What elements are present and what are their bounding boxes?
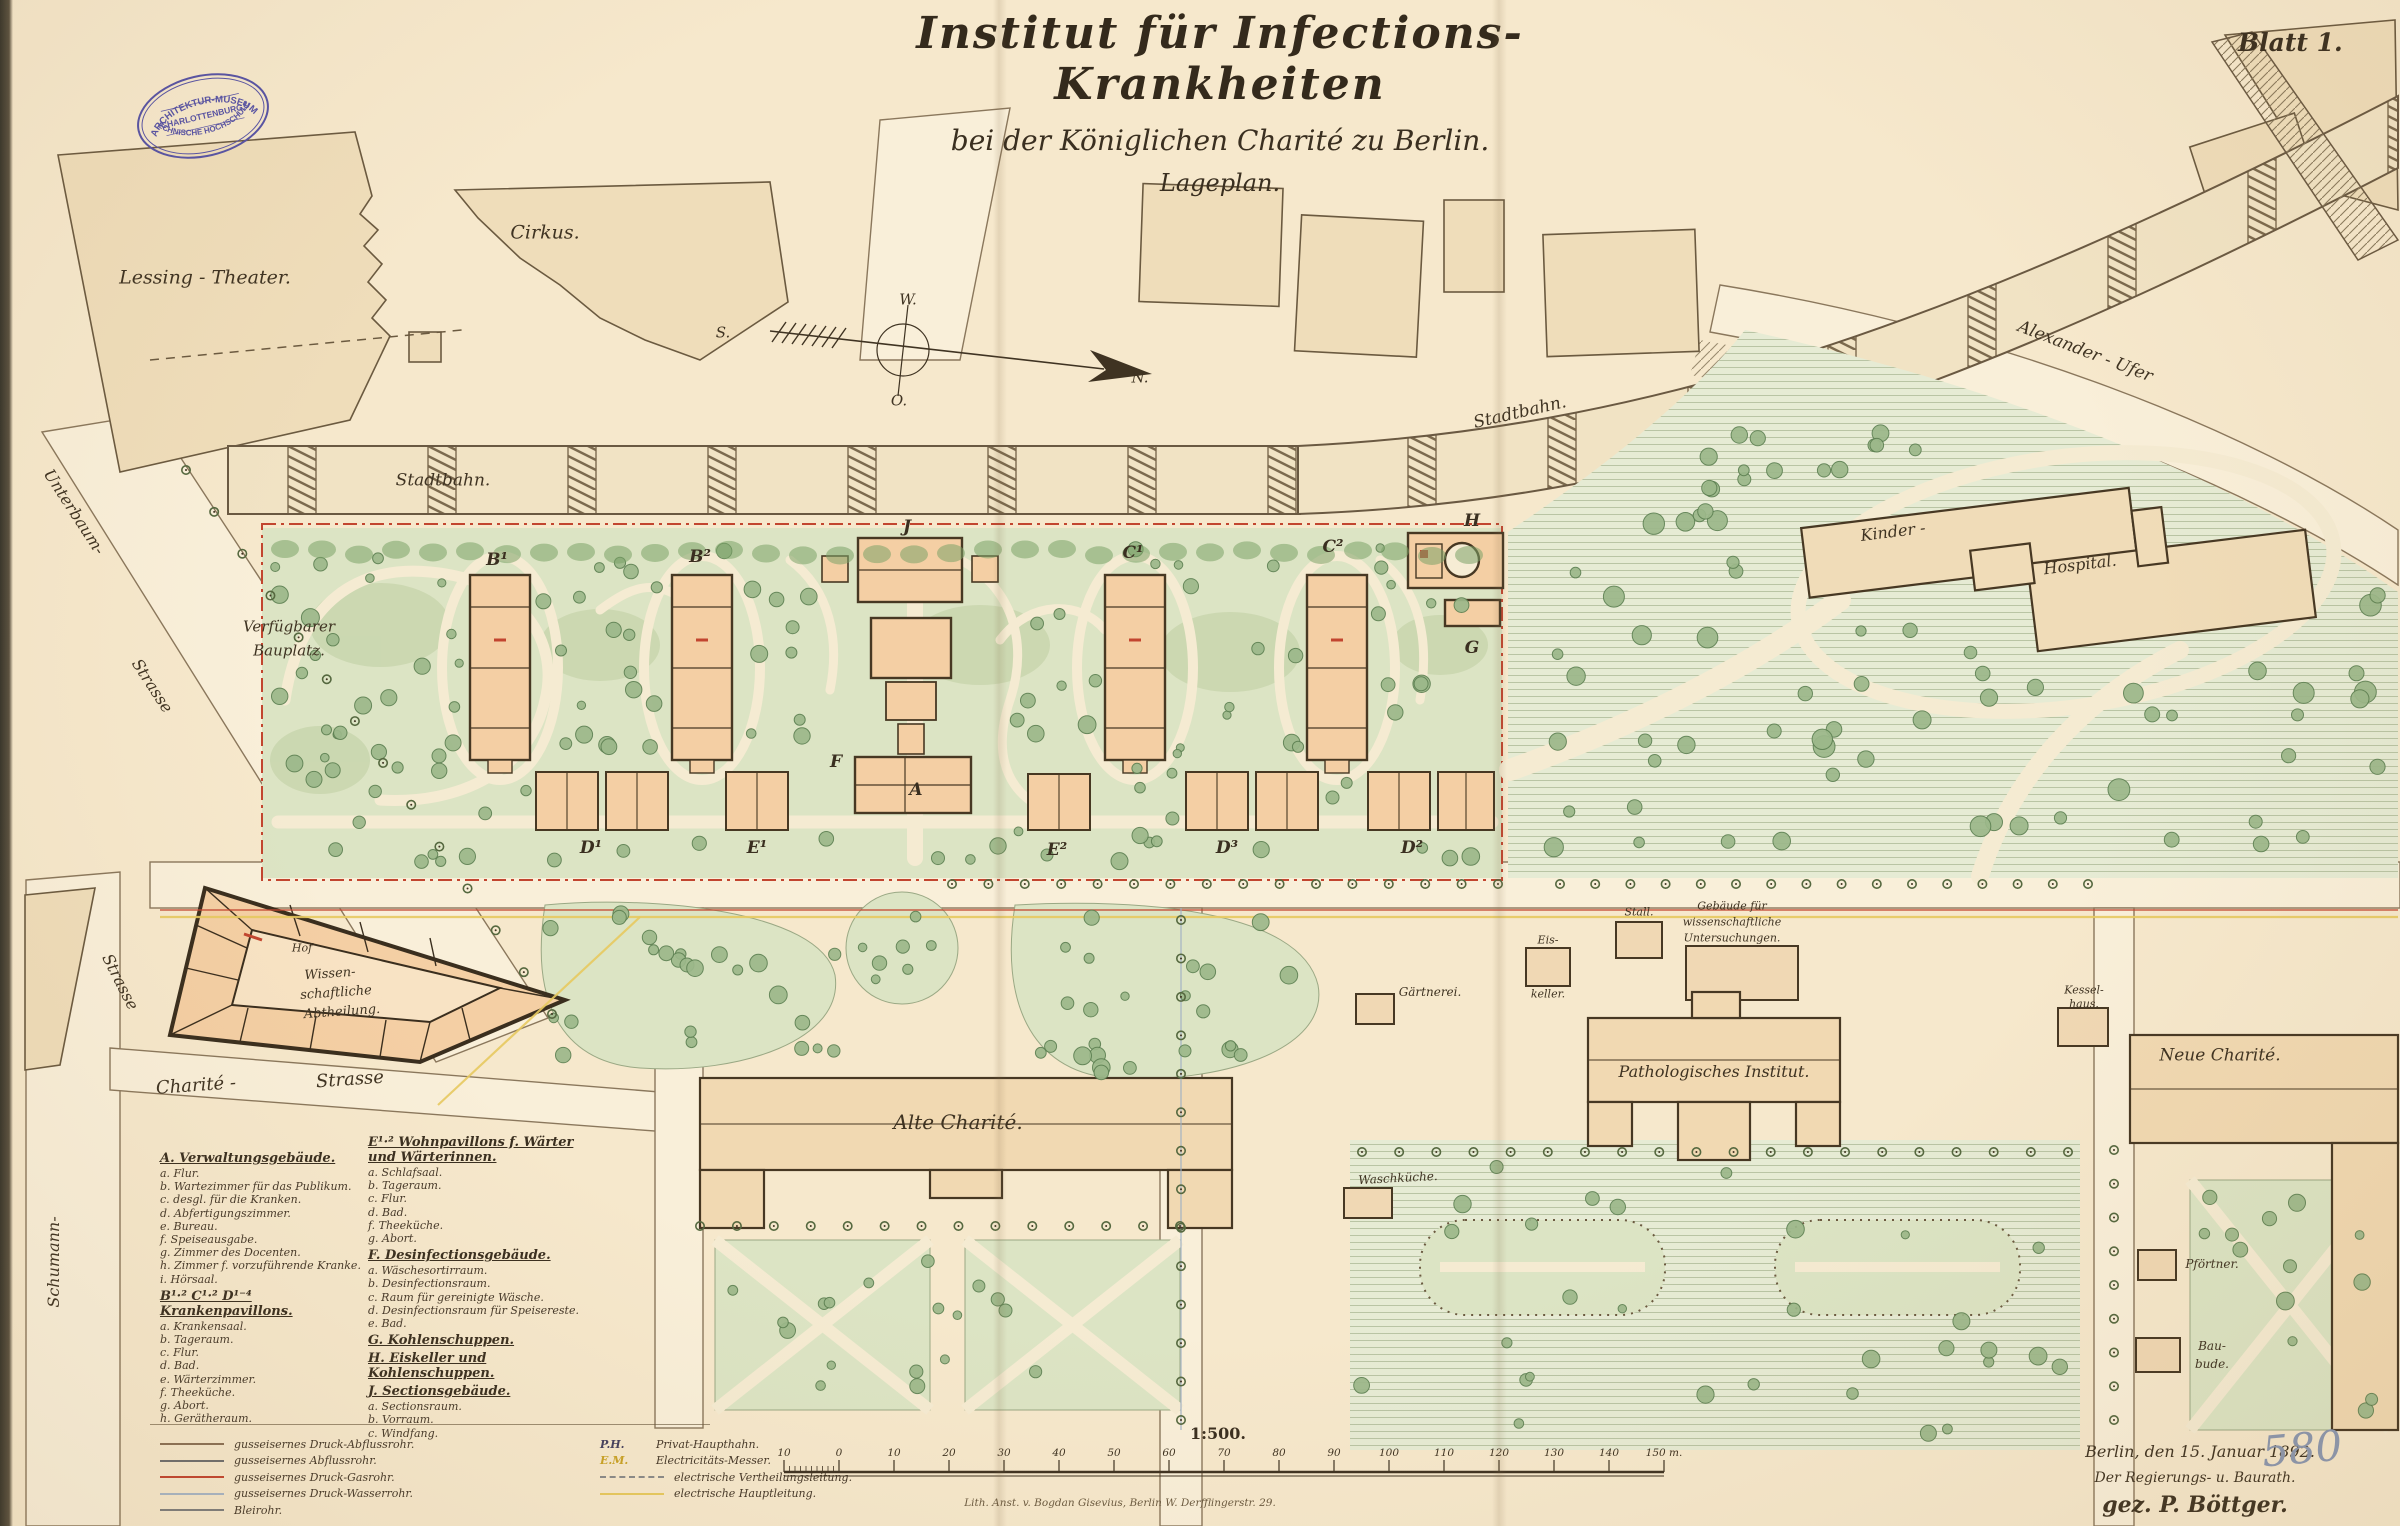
legend-key-left: gusseisernes Druck-Abflussrohr.gusseiser… [160, 1436, 414, 1519]
legend-item: a. Flur. [160, 1167, 384, 1180]
plan-type-label: Lageplan. [810, 169, 1630, 197]
building-top-3 [1444, 200, 1504, 292]
legend-key-line [600, 1476, 664, 1478]
scale-tick-label: 120 [1489, 1447, 1509, 1459]
legend-item: e. Wärterzimmer. [160, 1373, 384, 1386]
legend-item: d. Bad. [368, 1206, 592, 1219]
scale-tick-label: 90 [1327, 1447, 1341, 1459]
legend-heading: B¹·² C¹·² D¹⁻⁴ Krankenpavillons. [160, 1289, 384, 1319]
legend-item: c. Flur. [160, 1346, 384, 1359]
legend-item: b. Tageraum. [160, 1333, 384, 1346]
building-waschkueche [1344, 1188, 1392, 1218]
legend-heading: E¹·² Wohnpavillons f. Wärter und Wärteri… [368, 1135, 592, 1165]
legend-column-1: A. Verwaltungsgebäude.a. Flur.b. Wartezi… [160, 1148, 384, 1425]
legend-item: g. Abort. [368, 1232, 592, 1245]
building-top-1 [1139, 184, 1283, 307]
footer-signature: gez. P. Böttger. [2080, 1492, 2310, 1518]
legend-key-label: Privat-Haupthahn. [656, 1438, 759, 1451]
plan-letter-G: G [1465, 638, 1480, 658]
plan-letter-B²: B² [689, 547, 711, 567]
scale-tick-label: 100 [1379, 1447, 1399, 1459]
legend-key-row: gusseisernes Abflussrohr. [160, 1453, 414, 1470]
legend-key-label: Electricitäts-Messer. [656, 1454, 771, 1467]
scale-bar: 100102030405060708090100110120130140150 … [770, 1442, 1690, 1490]
legend-heading: J. Sectionsgebäude. [368, 1384, 592, 1399]
legend-item: a. Schlafsaal. [368, 1166, 592, 1179]
label-gaertnerei: Gärtnerei. [1399, 986, 1462, 998]
legend-key-line [160, 1476, 224, 1478]
label-neue-charite: Neue Charité. [2159, 1048, 2280, 1065]
legend-key-line [160, 1443, 224, 1445]
legend-key-row: gusseisernes Druck-Wasserrohr. [160, 1486, 414, 1503]
legend-item: h. Zimmer f. vorzuführende Kranke. [160, 1259, 384, 1272]
legend-item: c. Raum für gereinigte Wäsche. [368, 1291, 592, 1304]
plan-letter-E²: E² [1047, 840, 1067, 860]
legend-item: f. Speiseausgabe. [160, 1233, 384, 1246]
label-schumann: Schumann- [46, 1216, 62, 1307]
label-hof: Hof [292, 943, 312, 954]
legend-key-line [600, 1493, 664, 1495]
label-baubude-2: bude. [2195, 1358, 2229, 1370]
scale-tick-label: 0 [836, 1447, 843, 1459]
building-baubude [2136, 1338, 2180, 1372]
building-small-1 [409, 332, 441, 362]
page-subtitle: bei der Königlichen Charité zu Berlin. [810, 124, 1630, 157]
lithographer-imprint: Lith. Anst. v. Bogdan Gisevius, Berlin W… [940, 1497, 1300, 1509]
railway-stadtbahn-straight [228, 446, 1300, 514]
compass-east-label: O. [891, 394, 907, 409]
legend-heading: A. Verwaltungsgebäude. [160, 1151, 384, 1166]
plan-letter-A: A [909, 780, 922, 800]
label-verfuegbarer: Verfügbarer [243, 620, 335, 635]
legend-item: d. Bad. [160, 1359, 384, 1372]
plan-letter-C¹: C¹ [1123, 543, 1144, 563]
legend-item: a. Krankensaal. [160, 1320, 384, 1333]
building-top-2 [1295, 215, 1424, 357]
compass-west-label: W. [899, 293, 917, 308]
building-eiskeller-south [1526, 948, 1570, 986]
legend-heading: G. Kohlenschuppen. [368, 1333, 592, 1348]
scale-tick-label: 30 [997, 1447, 1011, 1459]
label-pfoertner: Pförtner. [2185, 1258, 2238, 1270]
legend-item: b. Desinfectionsraum. [368, 1277, 592, 1290]
legend-item: a. Wäschesortirraum. [368, 1264, 592, 1277]
scale-tick-label: 70 [1217, 1447, 1231, 1459]
compass-feathers [772, 322, 846, 348]
label-kesselhaus-2: haus. [2069, 999, 2099, 1010]
legend-item: a. Sectionsraum. [368, 1400, 592, 1413]
legend-heading: F. Desinfectionsgebäude. [368, 1248, 592, 1263]
legend-item: c. desgl. für die Kranken. [160, 1193, 384, 1206]
building-kesselhaus [2058, 1008, 2108, 1046]
label-wiss-unters-1: Gebäude für [1697, 901, 1766, 912]
plan-letter-D³: D³ [1216, 838, 1238, 858]
label-pathologisches-institut: Pathologisches Institut. [1619, 1064, 1810, 1080]
scale-tick-label: 150 m. [1646, 1447, 1683, 1459]
building-pavilion-b1 [470, 575, 530, 773]
legend-item: e. Bad. [368, 1317, 592, 1330]
legend-item: d. Desinfectionsraum für Speisereste. [368, 1304, 592, 1317]
legend-key-symbol: P.H. [600, 1438, 648, 1451]
scale-tick-label: 60 [1162, 1447, 1176, 1459]
building-cirkus [455, 182, 788, 360]
label-baubude-1: Bau- [2198, 1340, 2226, 1352]
legend-key-line [160, 1460, 224, 1462]
legend-item: g. Zimmer des Docenten. [160, 1246, 384, 1259]
scale-tick-label: 50 [1107, 1447, 1121, 1459]
plan-letter-D²: D² [1401, 838, 1423, 858]
scale-tick-label: 110 [1434, 1447, 1454, 1459]
legend-key-row: Bleirohr. [160, 1502, 414, 1519]
plan-letter-B¹: B¹ [486, 550, 508, 570]
scanned-site-plan-sheet: ARCHITEKTUR-MUSEUM CHARLOTTENBURG. TECHN… [0, 0, 2400, 1526]
page-title: Institut für Infections-Krankheiten [810, 8, 1630, 110]
plan-letter-H: H [1464, 511, 1480, 531]
label-bauplatz: Bauplatz. [253, 644, 325, 659]
legend-item: c. Flur. [368, 1192, 592, 1205]
legend-key-label: gusseisernes Druck-Wasserrohr. [234, 1487, 413, 1500]
label-stall: Stall. [1624, 907, 1653, 918]
legend-key-symbol: E.M. [600, 1454, 648, 1467]
plan-letter-E¹: E¹ [747, 838, 767, 858]
label-wiss-unters-3: Untersuchungen. [1684, 933, 1781, 944]
legend-item: f. Theeküche. [160, 1386, 384, 1399]
building-pavilion-b2 [672, 575, 732, 773]
legend-item: i. Hörsaal. [160, 1273, 384, 1286]
legend-item: b. Wartezimmer für das Publikum. [160, 1180, 384, 1193]
building-alte-charite [700, 1078, 1232, 1228]
legend-key-row: gusseisernes Druck-Abflussrohr. [160, 1436, 414, 1453]
legend-divider [150, 1424, 710, 1425]
title-block: Institut für Infections-Krankheiten bei … [810, 8, 1630, 197]
scale-tick-label: 130 [1544, 1447, 1564, 1459]
label-cirkus: Cirkus. [510, 224, 579, 243]
scale-tick-label: 20 [941, 1447, 956, 1459]
scan-edge [0, 0, 13, 1526]
label-kesselhaus-1: Kessel- [2064, 985, 2103, 996]
inventory-number: 580 [2260, 1421, 2344, 1477]
plan-letter-C²: C² [1323, 537, 1344, 557]
south-gardens [541, 892, 1319, 1079]
plan-letter-J: J [903, 517, 911, 537]
scale-tick-label: 10 [777, 1447, 791, 1459]
label-eiskeller-1: Eis- [1538, 935, 1559, 946]
scale-tick-label: 10 [887, 1447, 901, 1459]
legend-key-label: gusseisernes Druck-Abflussrohr. [234, 1438, 414, 1451]
legend-key-line [160, 1493, 224, 1495]
scale-ratio: 1:500. [778, 1424, 1658, 1443]
legend-item: d. Abfertigungszimmer. [160, 1207, 384, 1220]
legend-key-row: gusseisernes Druck-Gasrohr. [160, 1469, 414, 1486]
label-stadtbahn-west: Stadtbahn. [396, 473, 491, 490]
sheet-number: Blatt 1. [2238, 28, 2343, 57]
legend-column-2: E¹·² Wohnpavillons f. Wärter und Wärteri… [368, 1132, 592, 1440]
plan-letter-D¹: D¹ [580, 838, 602, 858]
legend-heading: H. Eiskeller und Kohlenschuppen. [368, 1351, 592, 1381]
label-lessing-theater: Lessing - Theater. [119, 269, 291, 288]
museum-stamp: ARCHITEKTUR-MUSEUM CHARLOTTENBURG. TECHN… [118, 58, 288, 178]
label-wiss-abt-1: Wissen- [304, 966, 356, 983]
building-pavilion-c1 [1105, 575, 1165, 773]
label-eiskeller-2: keller. [1531, 989, 1565, 1000]
label-charite-strasse-2: Strasse [315, 1069, 384, 1092]
legend-key-label: gusseisernes Abflussrohr. [234, 1454, 377, 1467]
legend-item: f. Theeküche. [368, 1219, 592, 1232]
scale-tick-label: 140 [1599, 1447, 1619, 1459]
label-wiss-unters-2: wissenschaftliche [1683, 917, 1782, 928]
building-gaertnerei [1356, 994, 1394, 1024]
legend-item: g. Abort. [160, 1399, 384, 1412]
building-pavilion-c2 [1307, 575, 1367, 773]
legend-key-line [160, 1509, 224, 1511]
legend-item: e. Bureau. [160, 1220, 384, 1233]
building-top-4 [1543, 229, 1699, 356]
label-alte-charite: Alte Charité. [893, 1112, 1022, 1132]
legend-key-label: gusseisernes Druck-Gasrohr. [234, 1471, 395, 1484]
legend-key-label: Bleirohr. [234, 1504, 282, 1517]
scale-tick-label: 40 [1051, 1447, 1066, 1459]
compass-north-label: N. [1132, 371, 1149, 386]
building-kohlenschuppen-g [1445, 600, 1500, 626]
building-pfoertner [2138, 1250, 2176, 1280]
compass-south-label: S. [716, 326, 731, 341]
plan-letter-F: F [830, 752, 842, 772]
scale-tick-label: 80 [1272, 1447, 1286, 1459]
legend-item: b. Tageraum. [368, 1179, 592, 1192]
building-stall [1616, 922, 1662, 958]
